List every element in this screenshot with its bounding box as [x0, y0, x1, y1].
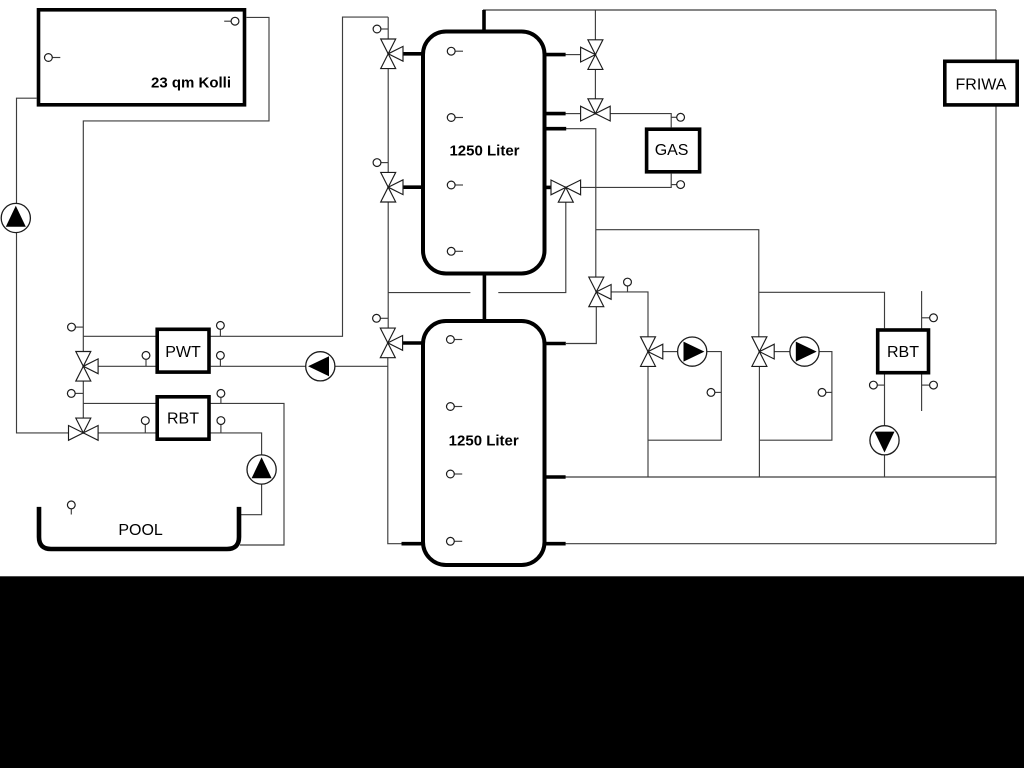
svg-text:POOL: POOL: [118, 522, 163, 539]
svg-text:1250 Liter: 1250 Liter: [449, 143, 519, 160]
svg-text:FRIWA: FRIWA: [956, 76, 1007, 93]
svg-text:PWT: PWT: [165, 344, 201, 361]
svg-text:23 qm Kolli: 23 qm Kolli: [151, 75, 231, 92]
svg-text:RBT: RBT: [167, 411, 199, 428]
svg-text:RBT: RBT: [887, 344, 919, 361]
svg-text:GAS: GAS: [655, 142, 689, 159]
svg-text:1250 Liter: 1250 Liter: [449, 433, 519, 450]
